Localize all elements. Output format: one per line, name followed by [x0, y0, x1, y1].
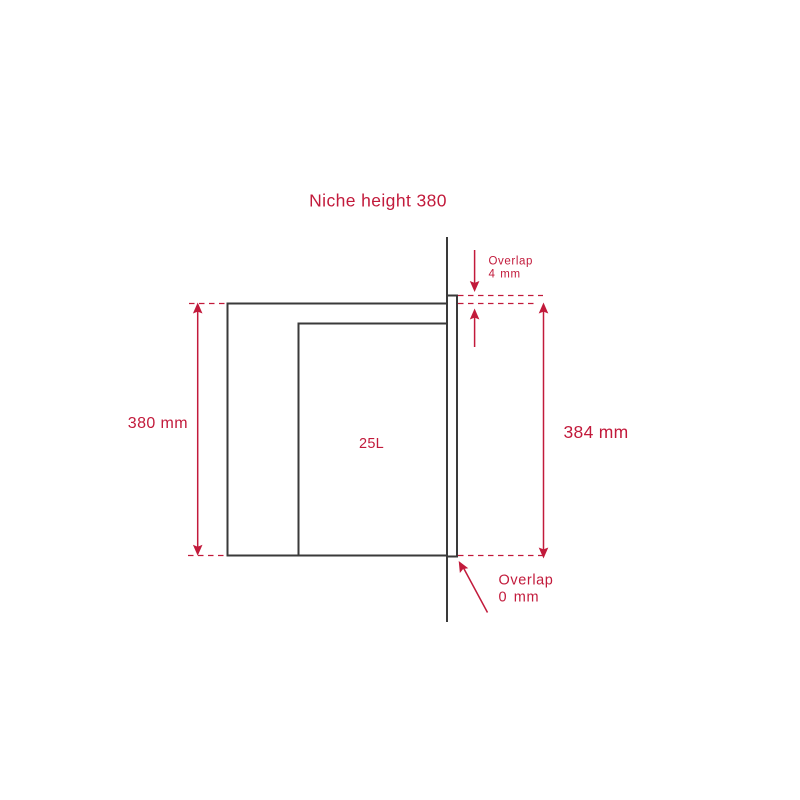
svg-text:Overlap: Overlap	[499, 573, 554, 589]
svg-text:Overlap: Overlap	[489, 256, 533, 268]
svg-text:384 mm: 384 mm	[564, 422, 629, 442]
svg-text:380 mm: 380 mm	[128, 415, 188, 432]
svg-text:0 mm: 0 mm	[499, 590, 540, 606]
svg-text:Niche height 380: Niche height 380	[309, 191, 447, 211]
svg-text:25L: 25L	[359, 436, 384, 452]
svg-text:4 mm: 4 mm	[489, 269, 521, 281]
